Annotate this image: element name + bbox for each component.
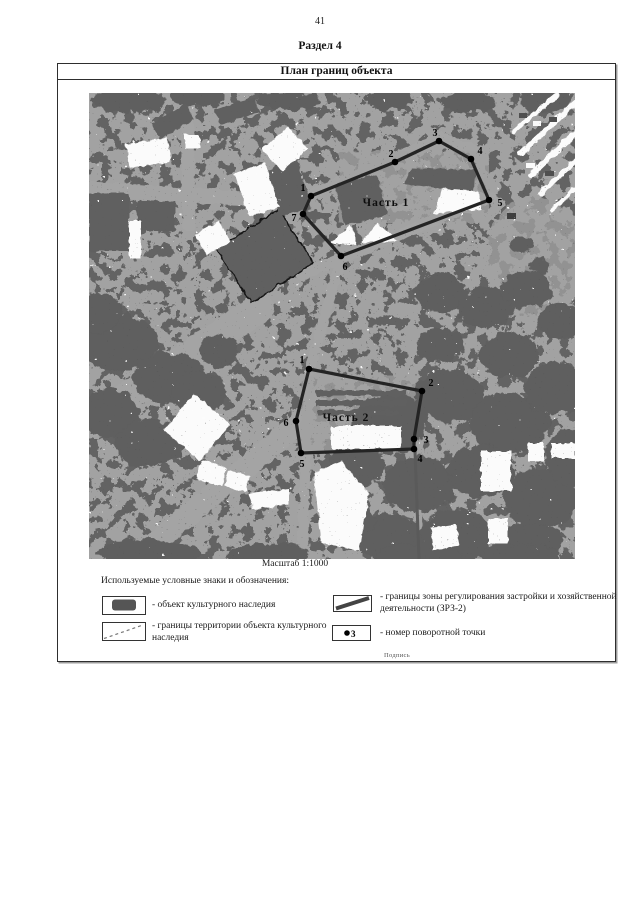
section-title: Раздел 4: [0, 40, 640, 52]
legend-item-heritage-object: - объект культурного наследия: [152, 600, 327, 612]
turn-point-number: 5: [498, 198, 503, 209]
site-plan-map: 1234567Часть 1123456Часть 2: [89, 93, 575, 559]
territory-boundary-symbol: [102, 622, 146, 641]
plan-frame: План границ объекта: [57, 63, 616, 662]
turn-point-number: 2: [389, 149, 394, 160]
part-label: Часть 2: [323, 412, 370, 424]
map-grain: [89, 93, 575, 559]
turn-point-number: 2: [429, 378, 434, 389]
turn-point-number: 4: [478, 146, 483, 157]
turn-point-marker: [468, 156, 475, 163]
turn-point-symbol-number: 3: [351, 629, 356, 639]
heritage-object-symbol: [102, 596, 146, 615]
turn-point-number: 3: [433, 128, 438, 139]
turn-point-marker: [486, 197, 493, 204]
turn-point-marker: [338, 253, 345, 260]
turn-point-marker: [411, 436, 418, 443]
plan-title: План границ объекта: [58, 64, 615, 80]
part-label: Часть 1: [363, 197, 410, 209]
turn-point-number: 6: [343, 262, 348, 273]
footer-note: Подпись: [384, 652, 410, 659]
legend-item-turn-point: - номер поворотной точки: [380, 628, 590, 640]
turn-point-number: 5: [300, 459, 305, 470]
turn-point-number: 7: [292, 213, 297, 224]
legend-item-zrz-boundary: - границы зоны регулирования застройки и…: [380, 592, 618, 615]
turn-point-number: 6: [284, 418, 289, 429]
turn-point-marker: [411, 446, 418, 453]
turn-point-marker: [298, 450, 305, 457]
turn-point-number: 4: [418, 454, 423, 465]
satellite-image: 1234567Часть 1123456Часть 2: [89, 93, 575, 559]
turn-point-number: 1: [301, 183, 306, 194]
turn-point-marker: [293, 418, 300, 425]
legend-header: Используемые условные знаки и обозначени…: [101, 576, 289, 586]
turn-point-icon: [344, 630, 350, 636]
turn-point-marker: [308, 193, 315, 200]
turn-point-number: 3: [424, 435, 429, 446]
turn-point-number: 1: [300, 355, 305, 366]
turn-point-marker: [419, 388, 426, 395]
page-number: 41: [0, 16, 640, 27]
turn-point-marker: [300, 211, 307, 218]
map-scale-label: Масштаб 1:1000: [89, 559, 501, 569]
turn-point-marker: [306, 366, 313, 373]
heritage-object-icon: [112, 600, 136, 611]
zrz-boundary-symbol: [333, 595, 372, 612]
turn-point-symbol: 3: [332, 625, 371, 641]
legend-item-territory-boundary: - границы территории объекта культурного…: [152, 621, 330, 644]
